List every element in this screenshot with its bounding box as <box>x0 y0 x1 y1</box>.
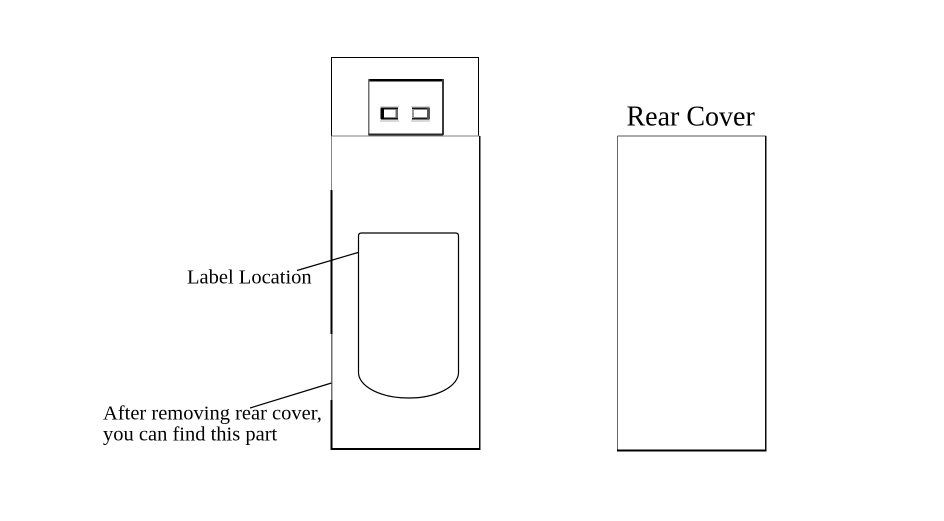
svg-text:After removing rear cover,: After removing rear cover, <box>103 403 322 425</box>
svg-text:you can find this part: you can find this part <box>103 423 278 445</box>
svg-text:Label Location: Label Location <box>187 267 312 289</box>
svg-text:Rear Cover: Rear Cover <box>627 102 756 133</box>
